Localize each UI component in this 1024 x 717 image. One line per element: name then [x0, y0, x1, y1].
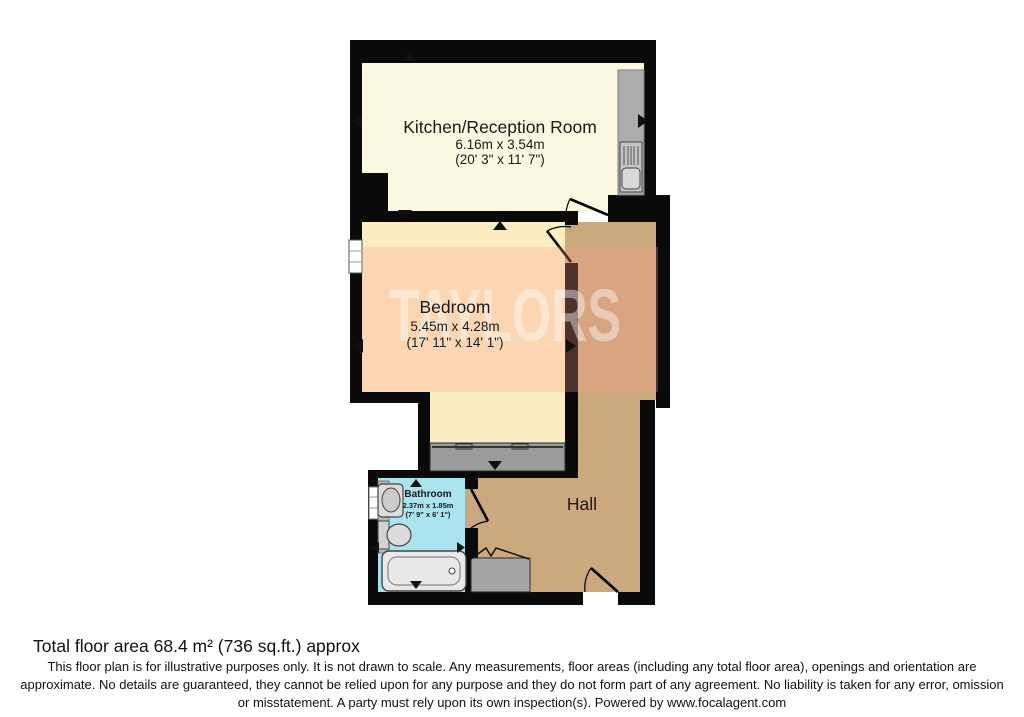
wall-right-lower — [640, 400, 655, 605]
wall-divider-top — [565, 211, 578, 225]
wall-corner-block — [608, 195, 656, 222]
kitchen-dims-metric: 6.16m x 3.54m — [455, 137, 544, 152]
wall-right-upper — [656, 195, 670, 408]
hall-label: Hall — [567, 494, 597, 514]
window-icon — [369, 487, 378, 519]
bathtub-icon — [382, 551, 466, 591]
floor-plan: TAYLORS Kitchen/Reception Room 6.16m x 3… — [0, 0, 1024, 717]
bathroom-dims-imperial: (7' 9" x 6' 1") — [406, 510, 451, 519]
kitchen-label: Kitchen/Reception Room — [403, 117, 597, 137]
basin-icon — [378, 484, 403, 517]
bathroom-dims-metric: 2.37m x 1.85m — [403, 501, 454, 510]
wall-kitchen-right — [644, 40, 656, 222]
bathroom-label: Bathroom — [404, 489, 451, 500]
total-area-label: Total floor area 68.4 m² (736 sq.ft.) ap… — [33, 636, 360, 657]
kitchen-sink-icon — [620, 142, 642, 192]
disclaimer-text: This floor plan is for illustrative purp… — [16, 658, 1008, 711]
watermark: TAYLORS — [362, 247, 658, 392]
kitchen-dims-imperial: (20' 3" x 11' 7") — [455, 152, 545, 167]
wall-kitchen-bottom — [350, 211, 566, 222]
bedroom-dims-imperial: (17' 11" x 14' 1") — [406, 335, 503, 350]
wall-top — [350, 40, 656, 63]
doorway-entry — [583, 592, 618, 605]
wall-step-vertical — [418, 392, 430, 478]
doorway-bathroom — [465, 489, 478, 528]
wardrobe — [430, 443, 565, 471]
bedroom-label: Bedroom — [419, 297, 490, 317]
wall-bath-divider-upper — [465, 478, 478, 489]
bedroom-dims-metric: 5.45m x 4.28m — [410, 319, 499, 334]
window-icon — [349, 240, 362, 273]
